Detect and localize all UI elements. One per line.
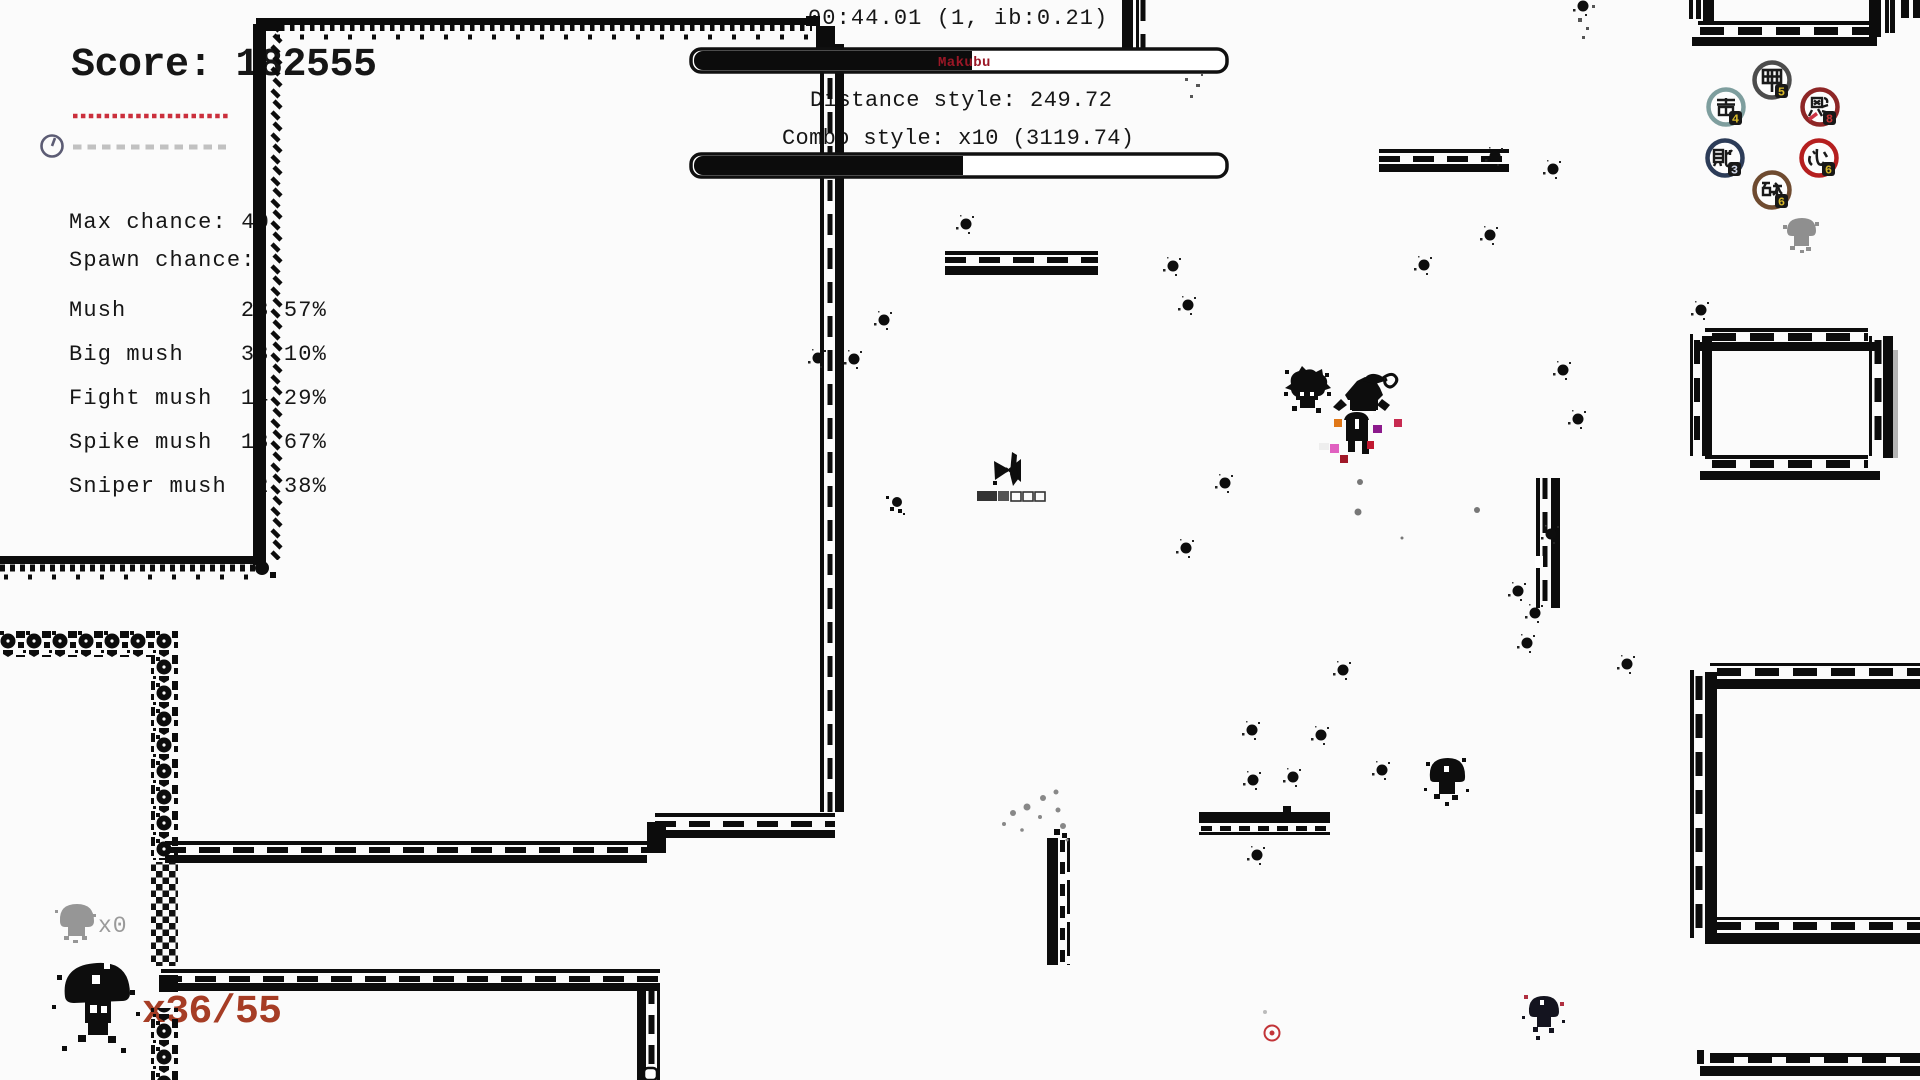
svg-text:4: 4 [1732,113,1739,127]
svg-text:00:44.01 (1, ib:0.21): 00:44.01 (1, ib:0.21) [808,6,1108,31]
svg-text:x0: x0 [98,913,128,939]
svg-text:Score: 182555: Score: 182555 [71,43,377,88]
svg-text:Big mush: Big mush [69,342,184,367]
svg-text:5: 5 [1778,86,1785,100]
svg-text:Spawn chance:: Spawn chance: [69,248,256,273]
svg-text:Sniper mush: Sniper mush [69,474,227,499]
svg-text:Max chance: 40: Max chance: 40 [69,210,270,235]
svg-text:Combo style: x10 (3119.74): Combo style: x10 (3119.74) [782,126,1134,151]
svg-text:8: 8 [1826,113,1833,127]
svg-text:Makubu: Makubu [938,55,991,71]
svg-text:6: 6 [1825,164,1832,178]
svg-text:3: 3 [1731,164,1738,178]
svg-text:Spike mush: Spike mush [69,430,213,455]
svg-text:Distance style: 249.72: Distance style: 249.72 [810,88,1113,113]
svg-text:Fight mush: Fight mush [69,386,213,411]
svg-text:6: 6 [1778,196,1785,210]
svg-text:Mush: Mush [69,298,126,323]
